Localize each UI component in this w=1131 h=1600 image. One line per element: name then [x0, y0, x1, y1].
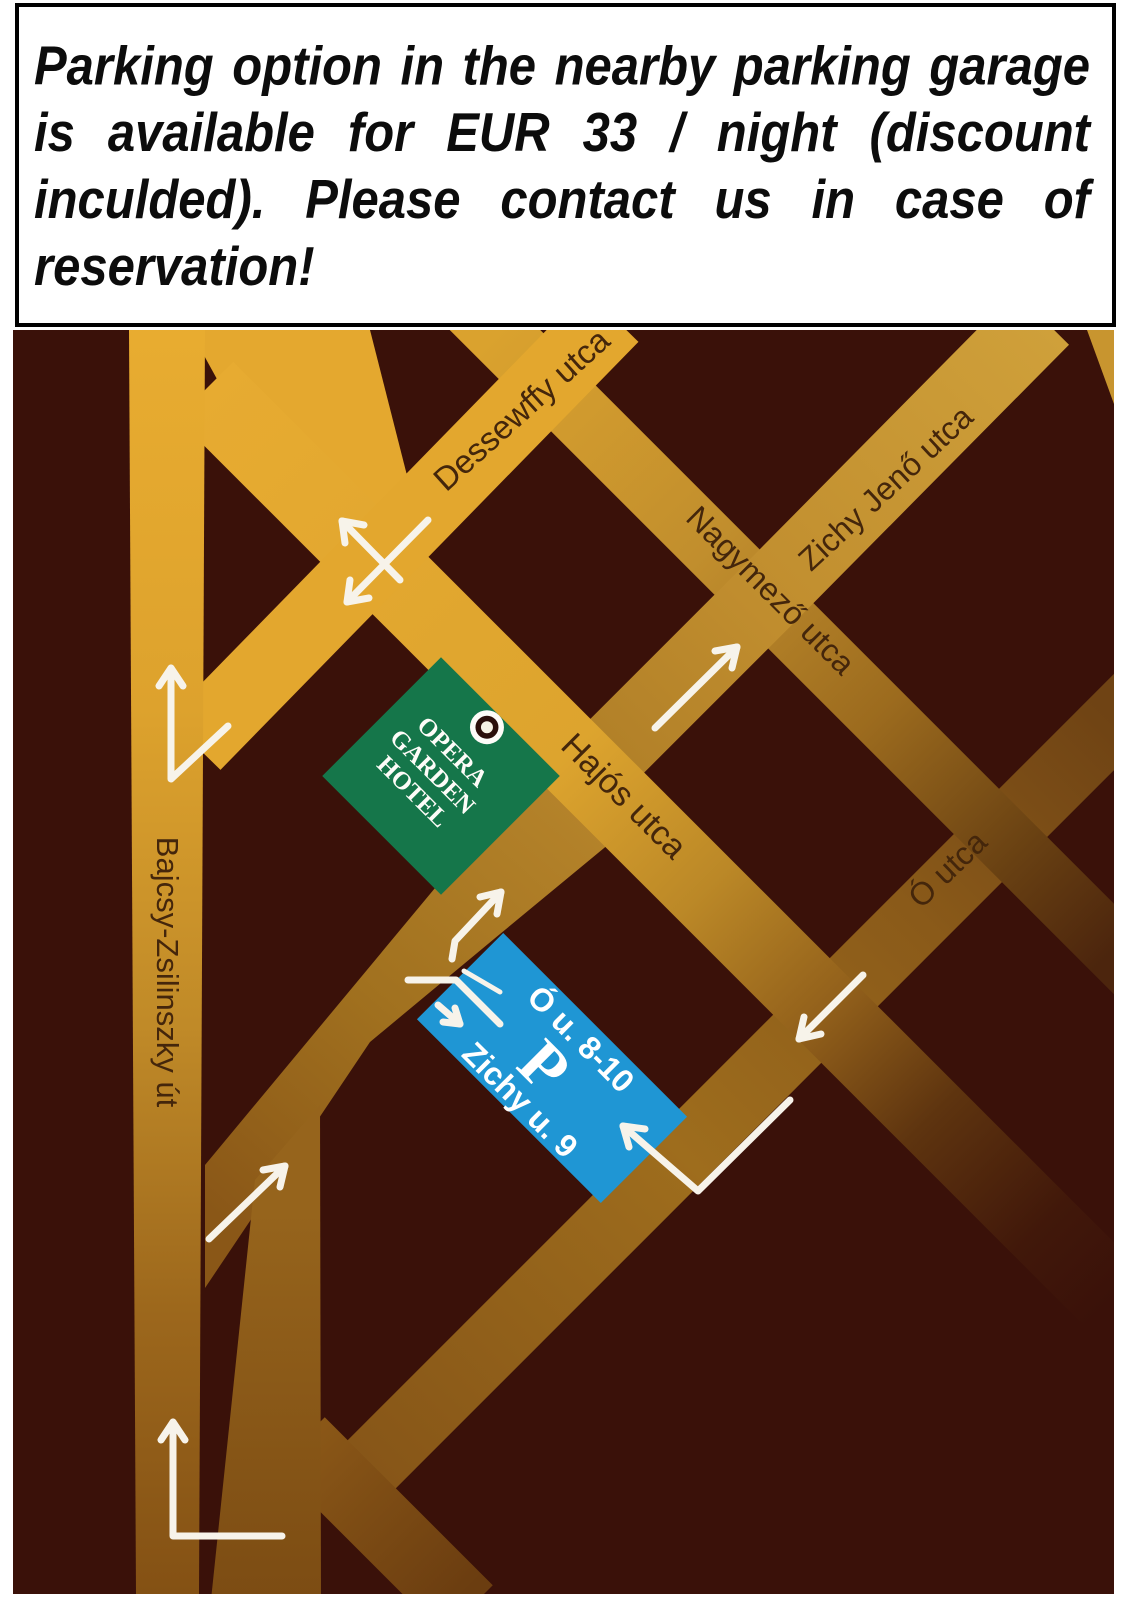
svg-text:Bajcsy-Zsilinszky út: Bajcsy-Zsilinszky út	[150, 837, 185, 1108]
